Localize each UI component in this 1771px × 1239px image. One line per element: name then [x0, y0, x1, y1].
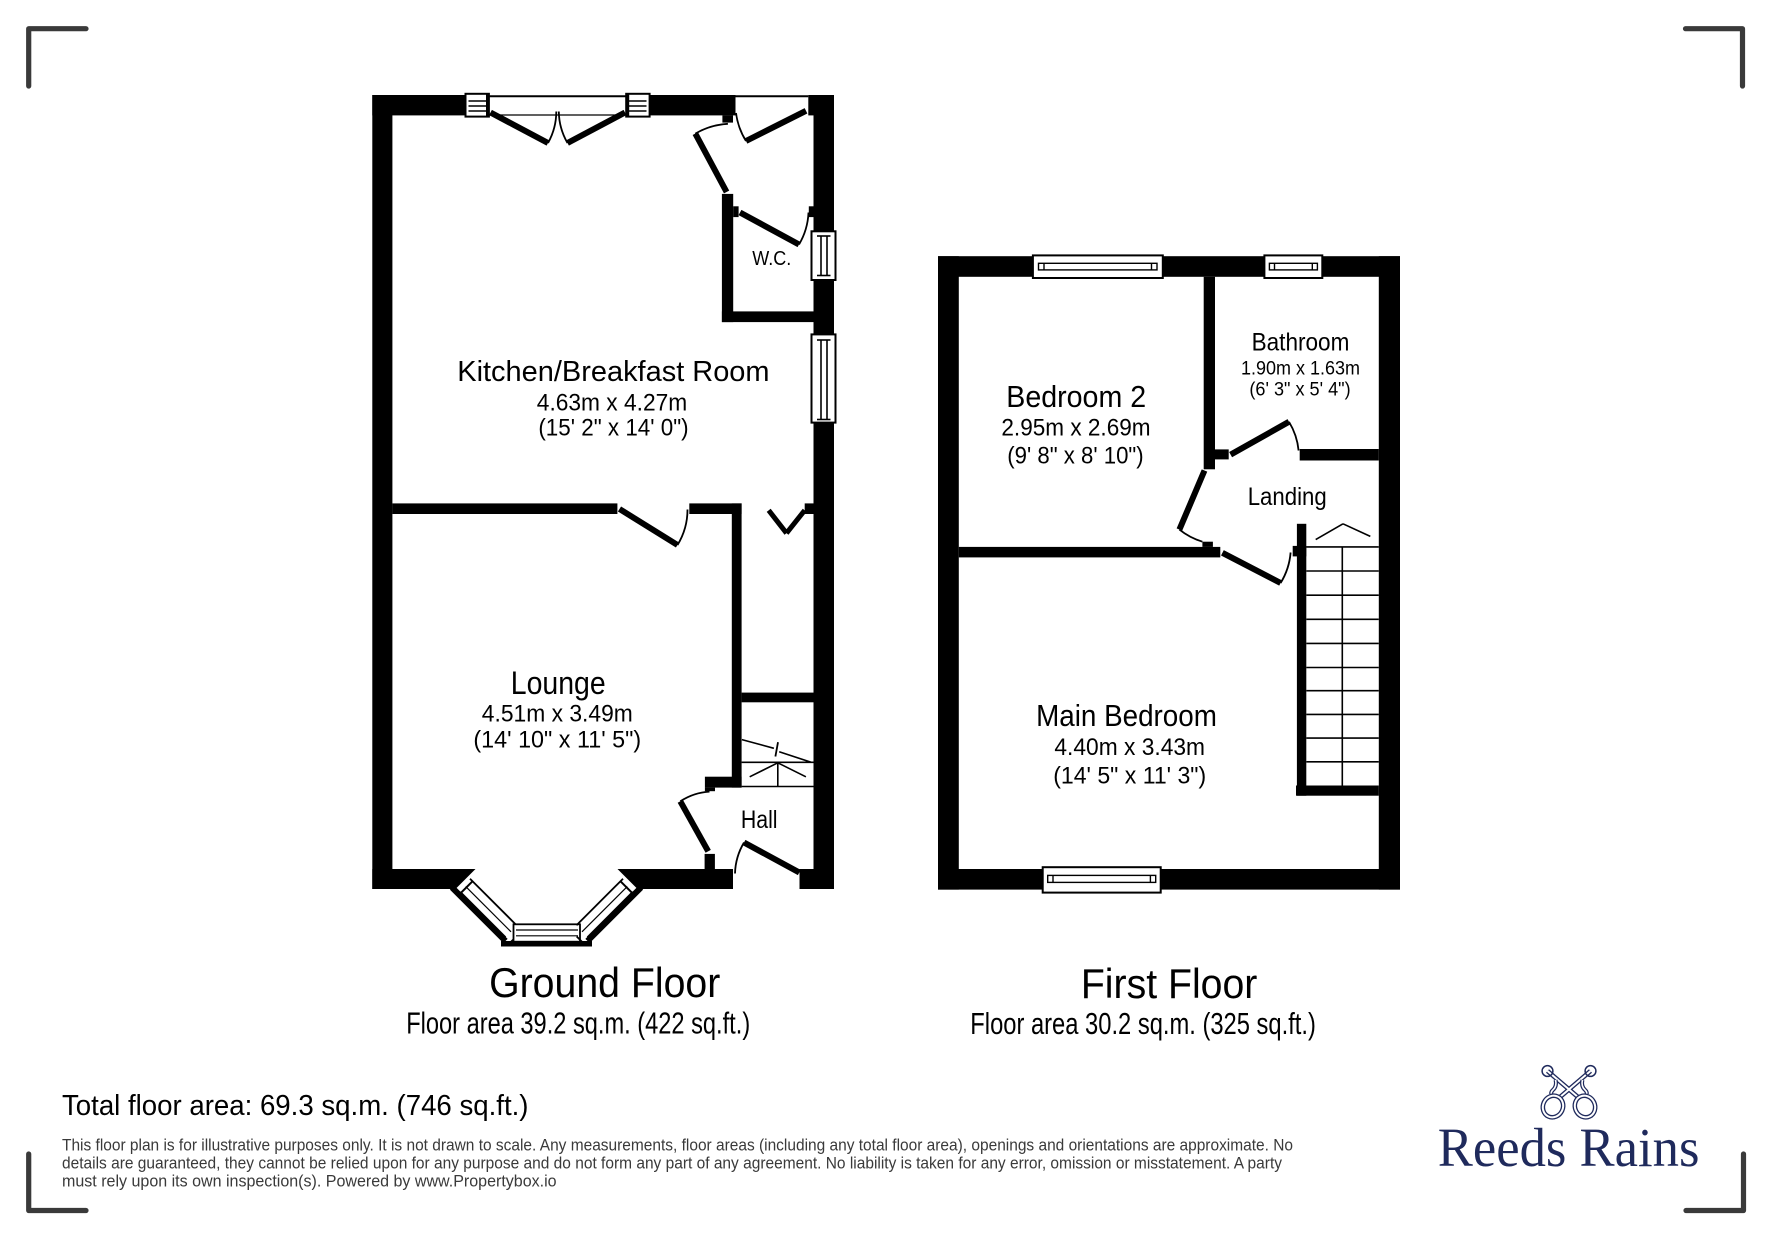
- svg-text:Kitchen/Breakfast Room: Kitchen/Breakfast Room: [457, 356, 769, 388]
- svg-text:4.63m x 4.27m: 4.63m x 4.27m: [537, 389, 687, 416]
- svg-text:Total floor area: 69.3 sq.m. (: Total floor area: 69.3 sq.m. (746 sq.ft.…: [62, 1090, 529, 1122]
- svg-text:2.95m x 2.69m: 2.95m x 2.69m: [1001, 414, 1150, 441]
- svg-text:Reeds Rains: Reeds Rains: [1438, 1117, 1700, 1178]
- svg-text:Floor area 39.2 sq.m. (422 sq.: Floor area 39.2 sq.m. (422 sq.ft.): [406, 1006, 750, 1041]
- svg-text:(9' 8" x 8' 10"): (9' 8" x 8' 10"): [1007, 443, 1143, 470]
- svg-text:(14' 5" x 11' 3"): (14' 5" x 11' 3"): [1053, 762, 1206, 789]
- svg-text:This floor plan is for illustr: This floor plan is for illustrative purp…: [62, 1137, 1293, 1155]
- svg-text:First Floor: First Floor: [1081, 960, 1258, 1007]
- svg-text:Landing: Landing: [1248, 483, 1327, 511]
- svg-text:Floor area 30.2 sq.m. (325 sq.: Floor area 30.2 sq.m. (325 sq.ft.): [970, 1006, 1316, 1041]
- svg-text:4.51m x 3.49m: 4.51m x 3.49m: [482, 701, 633, 728]
- svg-text:Lounge: Lounge: [511, 664, 606, 701]
- svg-text:Bathroom: Bathroom: [1252, 330, 1350, 357]
- svg-text:Bedroom 2: Bedroom 2: [1006, 381, 1146, 414]
- svg-text:1.90m x 1.63m: 1.90m x 1.63m: [1241, 358, 1360, 380]
- svg-text:details are guaranteed, they c: details are guaranteed, they cannot be r…: [62, 1155, 1283, 1173]
- svg-text:W.C.: W.C.: [752, 247, 791, 270]
- svg-text:Hall: Hall: [741, 806, 778, 834]
- svg-text:(6' 3" x 5' 4"): (6' 3" x 5' 4"): [1249, 379, 1350, 401]
- svg-text:Ground Floor: Ground Floor: [489, 959, 720, 1006]
- svg-text:must rely upon its own inspect: must rely upon its own inspection(s). Po…: [62, 1173, 557, 1191]
- svg-text:4.40m x 3.43m: 4.40m x 3.43m: [1054, 734, 1205, 761]
- svg-text:(14' 10" x 11' 5"): (14' 10" x 11' 5"): [473, 727, 641, 754]
- svg-text:Main Bedroom: Main Bedroom: [1036, 700, 1217, 733]
- svg-text:(15' 2" x 14' 0"): (15' 2" x 14' 0"): [538, 415, 688, 442]
